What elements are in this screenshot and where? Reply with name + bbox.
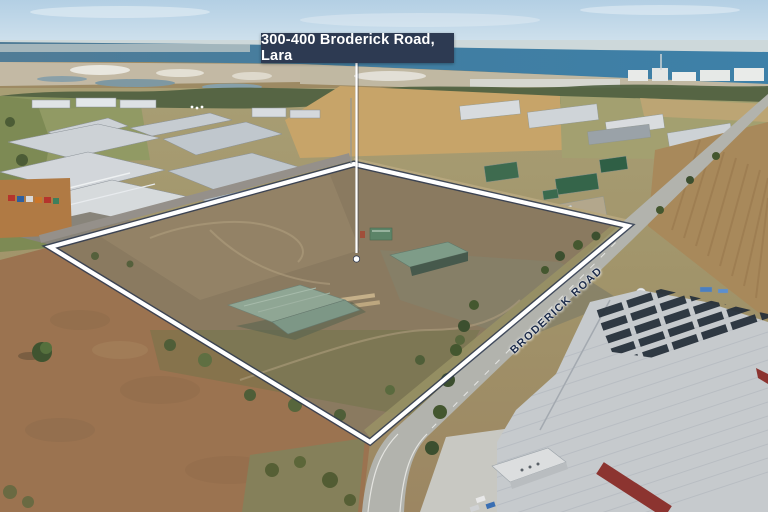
aerial-photo-art (0, 0, 768, 512)
property-address-label: 300-400 Broderick Road, Lara (261, 33, 454, 63)
pointer-dot (353, 256, 359, 262)
aerial-photo: 300-400 Broderick Road, Lara BRODERICK R… (0, 0, 768, 512)
